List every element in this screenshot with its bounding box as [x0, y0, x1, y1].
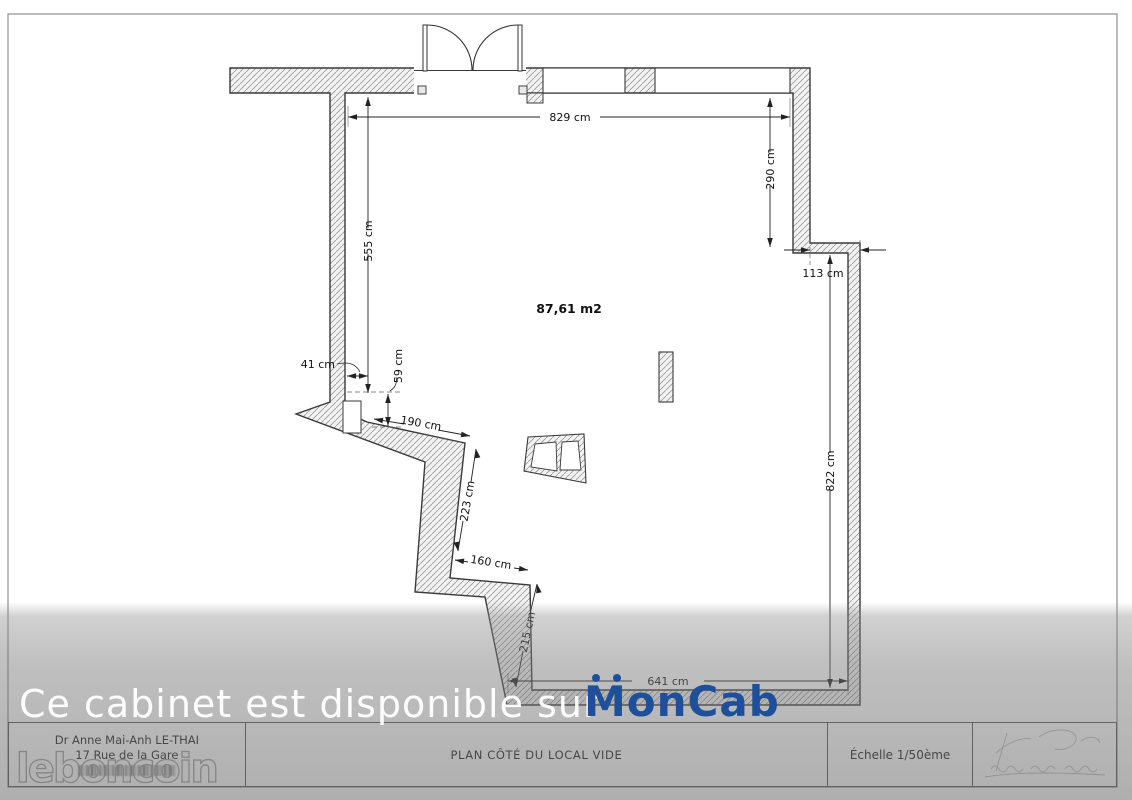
area-label: 87,61 m2: [536, 301, 602, 316]
dimension-label-top-width: 829 cm: [549, 111, 590, 124]
dimension-label-right-height: 822 cm: [824, 450, 837, 491]
title-block-signature: [973, 723, 1116, 786]
dimension-label-right-upper: 290 cm: [764, 148, 777, 189]
moncab-wordmark: MonCab: [584, 677, 780, 726]
wall-notch: [527, 93, 543, 103]
moncab-dot-icon: [613, 674, 621, 682]
title-block-drawing-title: PLAN CÔTÉ DU LOCAL VIDE: [246, 723, 828, 786]
fixture-icon: [524, 434, 586, 483]
dimension-label-step: 160 cm: [470, 553, 513, 572]
dimension-label-right-recess: 113 cm: [802, 267, 843, 280]
column-icon: [659, 352, 673, 402]
architect-script-signature-icon: [973, 723, 1116, 786]
wall-opening: [343, 401, 361, 433]
moncab-logo: MonCab: [584, 672, 780, 726]
watermark-headline: Ce cabinet est disponible sur: [19, 682, 600, 726]
drawing-title: PLAN CÔTÉ DU LOCAL VIDE: [451, 748, 623, 762]
floor-plan-page: 829 cm 555 cm 290 cm 113 cm 822 cm 641 c…: [0, 0, 1132, 800]
dimension-label-left-height: 555 cm: [362, 220, 375, 261]
top-wall-glazed-segment-right: [655, 68, 790, 93]
dimension-arrows: [347, 97, 869, 688]
double-door-icon: [414, 25, 527, 95]
dimension-label-left-stub-h: 59 cm: [392, 349, 405, 383]
moncab-dot-icon: [592, 674, 600, 682]
leboncoin-watermark: leboncoin: [16, 746, 217, 792]
dimension-label-left-stub-w: 41 cm: [301, 358, 335, 371]
sheet-border: [8, 14, 1117, 787]
top-wall-glazed-segment-left: [543, 68, 625, 93]
floor-plan-drawing: 829 cm 555 cm 290 cm 113 cm 822 cm 641 c…: [0, 0, 1132, 800]
address-line1: Dr Anne Mai-Anh LE-THAI: [55, 734, 199, 747]
title-block-scale: Échelle 1/50ème: [828, 723, 973, 786]
scale-label: Échelle 1/50ème: [850, 748, 950, 762]
